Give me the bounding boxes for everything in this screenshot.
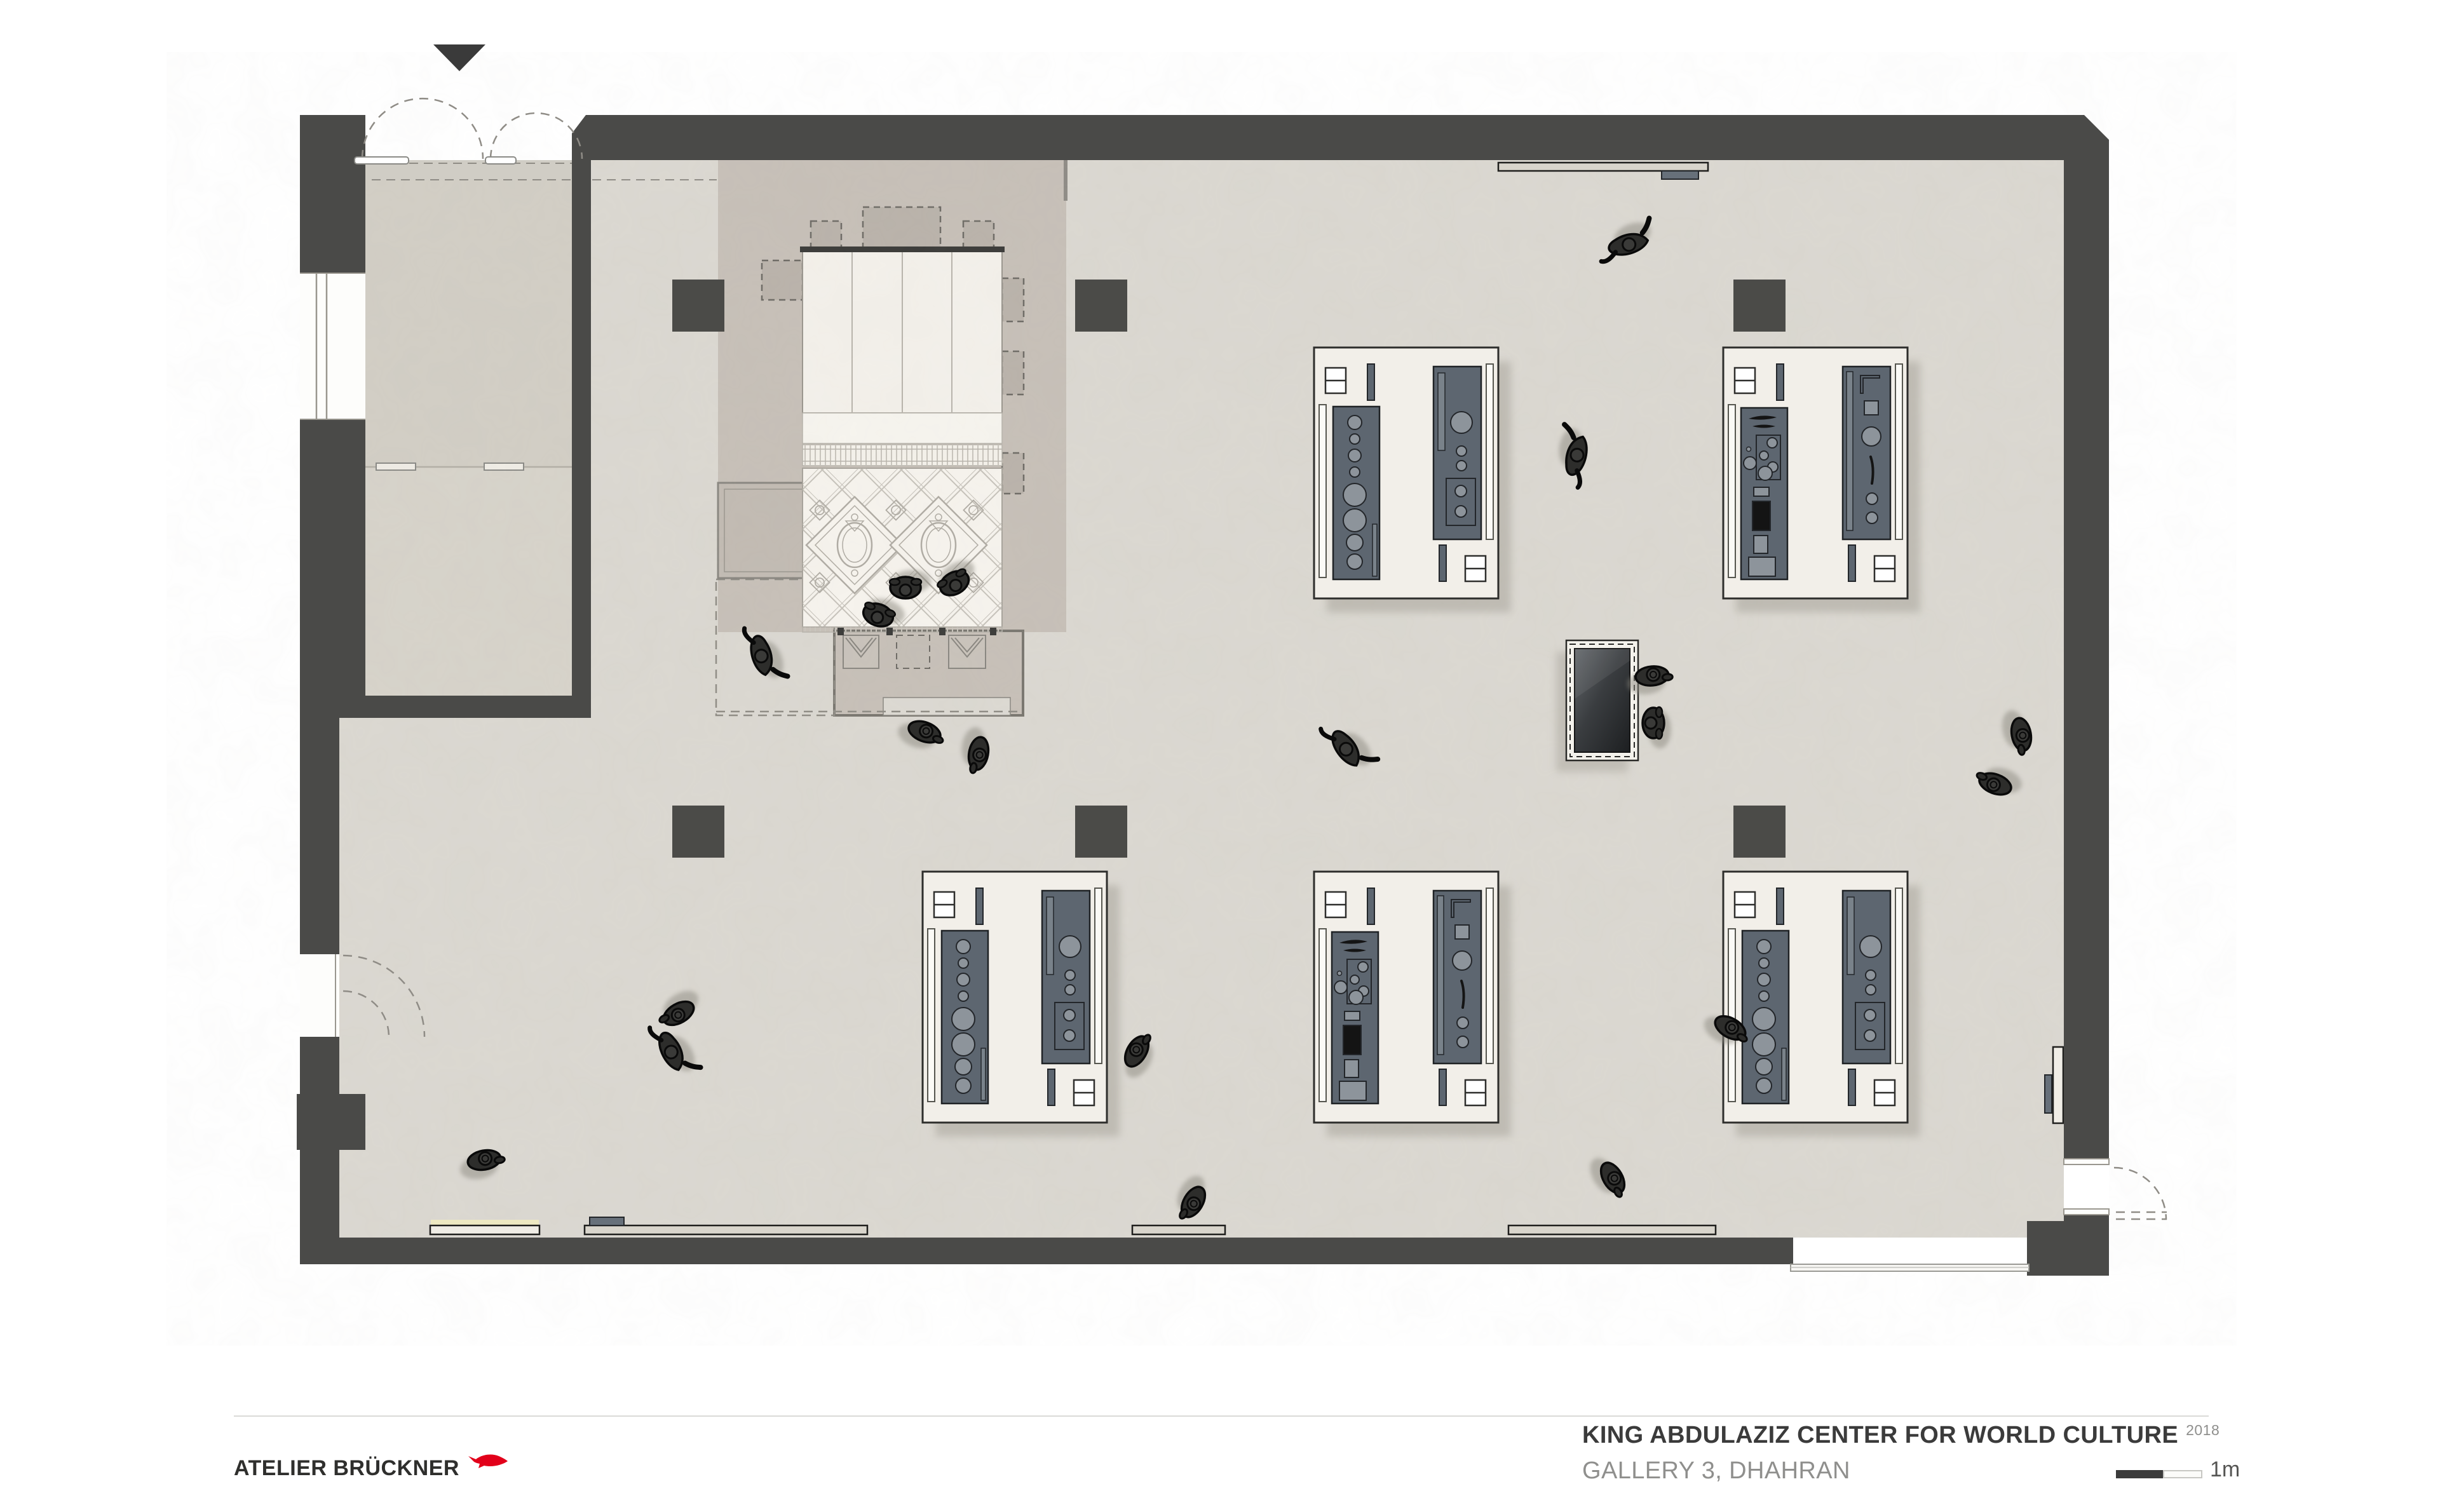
bench xyxy=(1508,1225,1716,1234)
bench-highlight xyxy=(431,1220,539,1225)
exhibit-table-4 xyxy=(1314,872,1511,1137)
scale-bar-label: 1m xyxy=(2210,1459,2240,1480)
column xyxy=(1075,806,1127,858)
door-swing-arc xyxy=(491,113,582,159)
bench xyxy=(430,1225,539,1234)
bench xyxy=(585,1225,867,1234)
studio-logo-text: ATELIER BRÜCKNER xyxy=(234,1457,459,1479)
bench xyxy=(1132,1225,1225,1234)
door-swing-arc xyxy=(362,98,483,159)
bench-media-box xyxy=(1662,171,1698,179)
studio-logo: ATELIER BRÜCKNER xyxy=(234,1457,508,1479)
fish-icon xyxy=(468,1453,508,1471)
media-wall xyxy=(1556,640,1638,772)
door-leaf xyxy=(485,157,516,164)
scale-bar: 1m xyxy=(2116,1456,2256,1484)
left-wall xyxy=(300,1037,339,1094)
exhibit-table-1 xyxy=(1314,348,1511,612)
right-wall xyxy=(2064,140,2109,1159)
glazed-opening xyxy=(1791,1238,2029,1271)
top-wall xyxy=(572,115,2109,160)
door-leaf xyxy=(355,157,409,164)
left-wall xyxy=(300,718,339,954)
left-wall xyxy=(300,419,365,718)
column xyxy=(1075,280,1127,332)
bench-media-box xyxy=(590,1217,624,1225)
right-door xyxy=(2064,1159,2167,1220)
bottom-right-corner-wall xyxy=(2027,1221,2109,1276)
scale-bar-light-segment xyxy=(2163,1470,2202,1478)
left-wall xyxy=(300,160,365,273)
left-wall-window xyxy=(300,273,365,419)
project-title: KING ABDULAZIZ CENTER FOR WORLD CULTURE xyxy=(1582,1422,2178,1448)
column xyxy=(1733,806,1786,858)
column xyxy=(672,806,724,858)
project-year: 2018 xyxy=(2186,1422,2220,1438)
top-wall-left xyxy=(300,115,365,160)
bench xyxy=(1498,163,1708,171)
column xyxy=(1733,280,1786,332)
exhibit-table-2 xyxy=(1723,348,1920,612)
exhibit-table-3 xyxy=(923,872,1120,1137)
exhibit-table-5 xyxy=(1723,872,1920,1137)
bottom-wall xyxy=(300,1238,1793,1264)
floor-plan-drawing xyxy=(0,0,2440,1512)
column xyxy=(672,280,724,332)
vestibule-bottom-wall xyxy=(365,696,591,718)
left-wall-pier xyxy=(297,1094,365,1150)
page-root: ATELIER BRÜCKNER KING ABDULAZIZ CENTER F… xyxy=(0,0,2440,1512)
entrance-arrow-icon xyxy=(433,44,485,71)
right-wall xyxy=(2064,1215,2109,1224)
vestibule-right-wall xyxy=(572,160,591,718)
footer-divider xyxy=(234,1415,2209,1417)
scale-bar-dark-segment xyxy=(2116,1470,2163,1478)
